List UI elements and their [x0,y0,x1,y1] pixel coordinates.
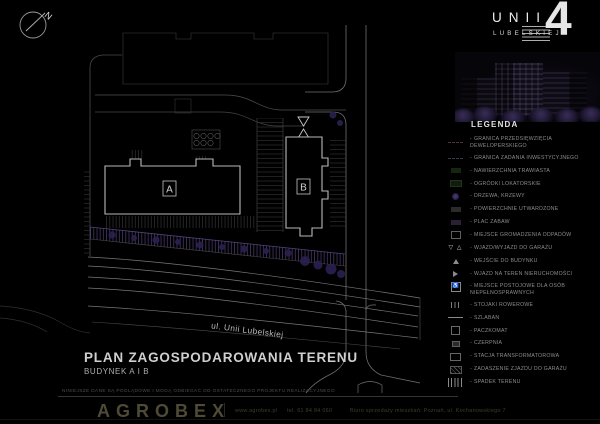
compass-north-label: N [43,10,54,22]
building-b: B [286,137,328,236]
building-a-label: A [166,185,173,196]
legend-item: -PACZKOMAT [441,327,598,335]
logo-numeral: 4 [545,0,572,44]
garage-ramp-roof-icon [441,366,470,374]
waste-collection-icon [441,231,470,239]
grass-surface-icon [441,167,470,175]
tenant-gardens-icon [441,180,470,188]
building-b-label: B [300,183,307,194]
footer: AGROBEX www.agrobex.pl tel. 61 84 84 060… [0,399,600,424]
legend-item: -GRANICA ZADANIA INWESTYCYJNEGO [441,154,598,162]
internal-driveway [95,95,346,126]
waste-collection-area [192,130,220,149]
southwest-curves [0,306,90,333]
legend-item: -OGRÓDKI LOKATORSKIE [441,180,598,188]
legend-item: -CZERPNIA [441,340,598,348]
air-intake-icon [441,340,470,348]
disabled-parking-icon: ♿ [441,283,470,291]
footer-divider [224,403,225,417]
sheet-title: PLAN ZAGOSPODAROWANIA TERENU [84,350,358,365]
legend-item: ♿ -MIEJSCE POSTOJOWE DLA OSÓB NIEPEŁNOSP… [441,283,598,296]
terrain-slope-icon [441,379,470,387]
paved-surface-icon [441,206,470,214]
transformer-station-icon [441,353,470,361]
building-entrance-icon [441,257,470,265]
barrier-icon [441,314,470,322]
adjacent-building-outline [123,33,328,84]
legend-item: -PLAC ZABAW [441,219,598,227]
sheet-subtitle: BUDYNEK A I B [84,367,358,376]
legend-item: -STACJA TRANSFORMATOROWA [441,353,598,361]
legend-item: -WJAZD NA TEREN NIERUCHOMOŚCI [441,270,598,278]
development-logo: 4 UNII LUBELSKIEJ [452,4,598,52]
title-block: PLAN ZAGOSPODAROWANIA TERENU BUDYNEK A I… [84,350,358,376]
legend-item: -SZLABAN [441,314,598,322]
footer-sales-office: Biuro sprzedaży mieszkań: Poznań, ul. Ko… [350,408,506,414]
legend-item: -WEJŚCIE DO BUDYNKU [441,257,598,265]
developer-boundary-icon [441,139,470,147]
legend-panel: LEGENDA -GRANICA PRZEDSIĘWZIĘCIA DEWELOP… [441,120,598,391]
legend-item: -GRANICA PRZEDSIĘWZIĘCIA DEWELOPERSKIEGO [441,136,598,149]
property-entry-icon [441,270,470,278]
render-building-right [543,72,587,114]
footer-phone: tel. 61 84 84 060 [287,408,332,414]
legend-item: -ZADASZENIE ZJAZDU DO GARAŻU [441,366,598,374]
legend-item: -SPADEK TERENU [441,379,598,387]
logo-line2: LUBELSKIEJ [493,30,562,37]
building-a: A [105,159,240,214]
playground-icon [441,219,470,227]
compass-icon: N [20,10,54,38]
legend-item: -STOJAKI ROWEROWE [441,301,598,309]
footer-hairline [0,419,600,420]
title-rule [58,396,458,397]
investment-boundary-icon [441,154,470,162]
trees-shrubs-icon [441,193,470,201]
bike-racks-icon [441,301,470,309]
disclaimer-text: NINIEJSZE DANE SĄ POGLĄDOWE I MOGĄ ODBIE… [62,388,335,393]
legend-item: ▽ △ -WJAZD/WYJAZD DO GARAŻU [441,244,598,252]
legend-item: -MIEJSCE GROMADZENIA ODPADÓW [441,231,598,239]
site-plan-sheet: N [0,0,600,424]
garage-entry-exit-icon: ▽ △ [441,244,470,252]
parcel-locker-icon [441,327,470,335]
logo-line1: UNII [492,10,547,25]
garage-entry-exit-markers [298,117,309,138]
legend-item: -DRZEWA, KRZEWY [441,193,598,201]
legend-item: -NAWIERZCHNIA TRAWIASTA [441,167,598,175]
legend-title: LEGENDA [471,120,598,129]
building-render-image [455,52,600,122]
legend-item: -POWIERZCHNIE UTWARDZONE [441,206,598,214]
boundary-hatch [84,168,90,256]
street-label: ul. Unii Lubelskiej [211,320,284,339]
footer-website: www.agrobex.pl [235,408,277,414]
